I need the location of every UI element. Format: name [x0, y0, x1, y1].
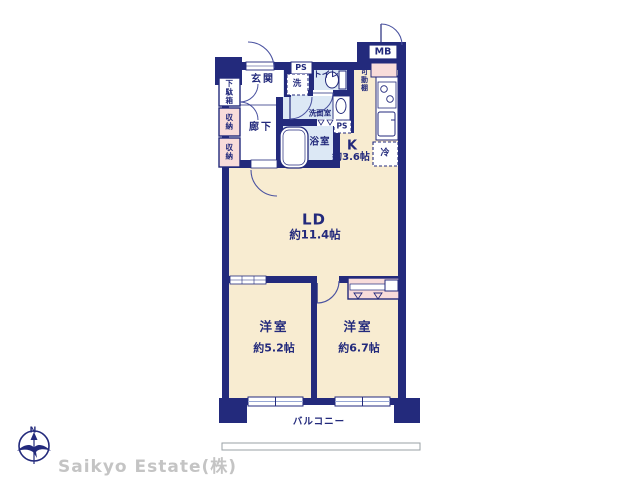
compass-north-label: N — [30, 426, 37, 435]
storage-lower-label: 収納 — [225, 144, 233, 161]
vanity-sink-icon — [333, 96, 350, 120]
compass-north-icon — [17, 431, 51, 464]
shoe-box-label: 下駄箱 — [225, 79, 233, 105]
toilet-label: トイレ — [313, 71, 339, 80]
bedroom-right-size: 約6.7帖 — [338, 343, 380, 354]
pipe-space-top-label: PS — [295, 64, 307, 72]
entrance-label: 玄関 — [251, 75, 275, 85]
kitchen-label: K — [347, 140, 357, 153]
meter-box-label: MB — [375, 47, 392, 57]
bedroom-left-label: 洋室 — [259, 321, 288, 334]
pipe-space-mid-label: PS — [337, 122, 348, 130]
bath-folding-door — [317, 119, 336, 126]
kitchen-counter — [376, 76, 398, 140]
entrance-door — [246, 42, 274, 70]
kitchen-size-label: 約3.6帖 — [332, 153, 370, 163]
bathroom-label: 浴室 — [309, 137, 330, 147]
washroom-label: 洗面室 — [309, 109, 332, 117]
bedroom-left-size: 約5.2帖 — [253, 343, 295, 354]
balcony-railing — [222, 443, 420, 450]
balcony-label: バルコニー — [293, 417, 345, 427]
movable-shelf-label: 可動棚 — [361, 68, 368, 92]
closet — [348, 278, 399, 299]
hallway-label: 廊下 — [249, 123, 273, 133]
sliding-door — [230, 276, 266, 284]
refrigerator-label: 冷 — [380, 150, 389, 159]
bedroom-right-label: 洋室 — [343, 321, 372, 334]
living-dining-label: LD — [302, 213, 326, 228]
company-name: Saikyo Estate(株) — [58, 452, 237, 477]
storage-upper-label: 収納 — [225, 114, 233, 131]
living-dining-size: 約11.4帖 — [289, 229, 340, 241]
washer-label: 洗 — [293, 80, 302, 89]
kitchen-sink-icon — [378, 112, 395, 136]
balcony-window-right — [335, 397, 390, 406]
movable-shelf-box — [371, 63, 397, 77]
bathtub-icon — [280, 127, 308, 168]
floorplan-page: 玄関 下駄箱 収納 収納 廊下 PS 洗 トイレ 可動棚 MB 洗面室 PS 浴… — [0, 0, 640, 480]
balcony-window-left — [248, 397, 303, 406]
